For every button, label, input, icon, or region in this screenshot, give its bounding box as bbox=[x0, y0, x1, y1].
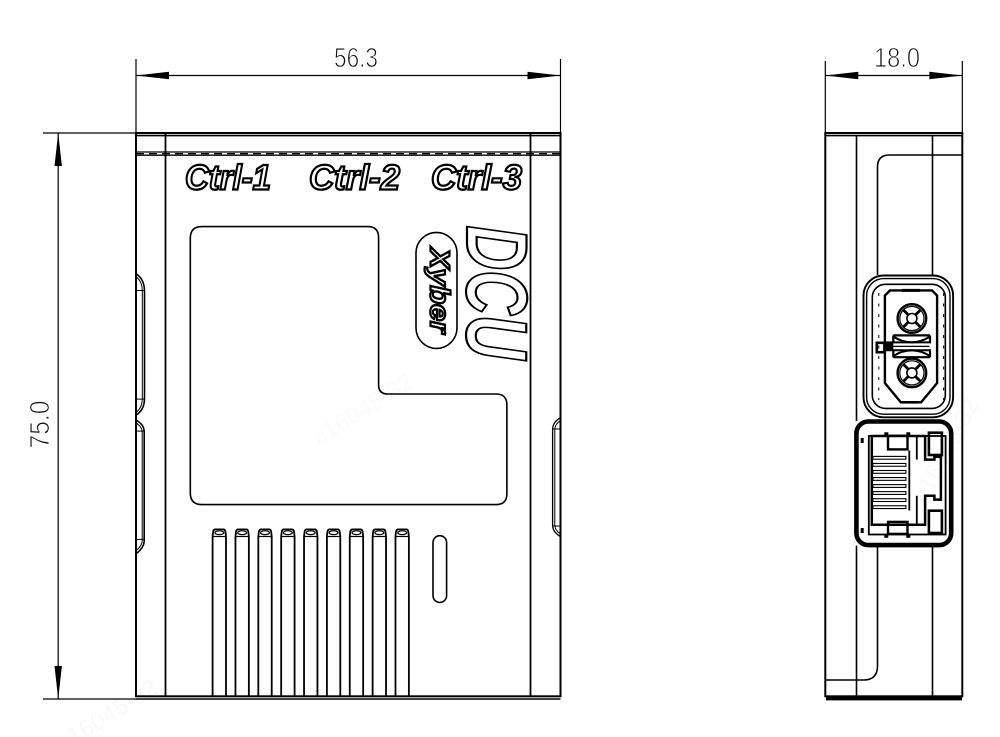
svg-text:75.0: 75.0 bbox=[24, 401, 55, 449]
svg-text:DCU: DCU bbox=[448, 226, 544, 361]
svg-text:Ctrl-3: Ctrl-3 bbox=[431, 159, 523, 198]
svg-text:Ctrl-1: Ctrl-1 bbox=[185, 159, 271, 198]
svg-text:18.0: 18.0 bbox=[874, 42, 920, 73]
svg-text:56.3: 56.3 bbox=[334, 42, 378, 73]
svg-text:Ctrl-2: Ctrl-2 bbox=[309, 159, 401, 198]
